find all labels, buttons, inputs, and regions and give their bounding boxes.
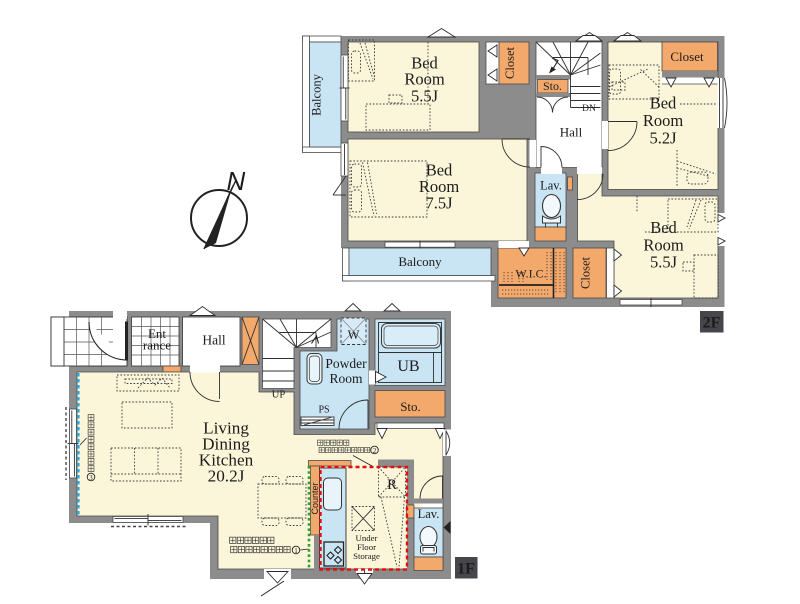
svg-text:1F: 1F xyxy=(457,561,475,578)
svg-text:Hall: Hall xyxy=(202,333,225,348)
svg-text:20.2J: 20.2J xyxy=(208,467,245,486)
svg-text:2: 2 xyxy=(373,447,377,455)
svg-text:Closet: Closet xyxy=(579,257,593,289)
svg-text:Sto.: Sto. xyxy=(543,79,562,93)
svg-text:UB: UB xyxy=(397,358,419,375)
svg-text:Sto.: Sto. xyxy=(400,399,421,414)
svg-text:Room: Room xyxy=(643,111,684,130)
svg-text:Bed: Bed xyxy=(650,218,677,237)
svg-text:5.2J: 5.2J xyxy=(649,129,677,148)
svg-text:DN: DN xyxy=(582,104,596,114)
svg-text:PS: PS xyxy=(318,405,329,416)
svg-text:W.I.C.: W.I.C. xyxy=(515,267,546,281)
svg-text:Balcony: Balcony xyxy=(310,73,324,115)
svg-text:7.5J: 7.5J xyxy=(425,194,453,213)
svg-text:Bed: Bed xyxy=(650,94,677,113)
svg-text:R: R xyxy=(387,477,397,493)
svg-text:3: 3 xyxy=(89,474,93,482)
svg-text:Counter: Counter xyxy=(310,482,320,514)
svg-text:Closet: Closet xyxy=(670,49,704,64)
svg-text:Hall: Hall xyxy=(560,125,583,140)
svg-text:N: N xyxy=(227,166,246,196)
svg-text:Lav.: Lav. xyxy=(540,179,562,193)
svg-text:Storage: Storage xyxy=(353,551,380,561)
svg-text:Closet: Closet xyxy=(503,47,517,79)
svg-text:UP: UP xyxy=(272,390,286,401)
svg-text:rance: rance xyxy=(143,338,171,353)
svg-text:Balcony: Balcony xyxy=(398,254,442,269)
svg-text:Powder: Powder xyxy=(325,356,367,371)
svg-text:Lav.: Lav. xyxy=(418,507,440,521)
svg-text:W: W xyxy=(348,328,360,342)
svg-text:1: 1 xyxy=(294,547,298,555)
svg-text:2F: 2F xyxy=(703,315,721,332)
svg-text:5.5J: 5.5J xyxy=(411,87,439,106)
svg-text:5.5J: 5.5J xyxy=(650,253,678,272)
svg-text:Room: Room xyxy=(329,371,363,386)
